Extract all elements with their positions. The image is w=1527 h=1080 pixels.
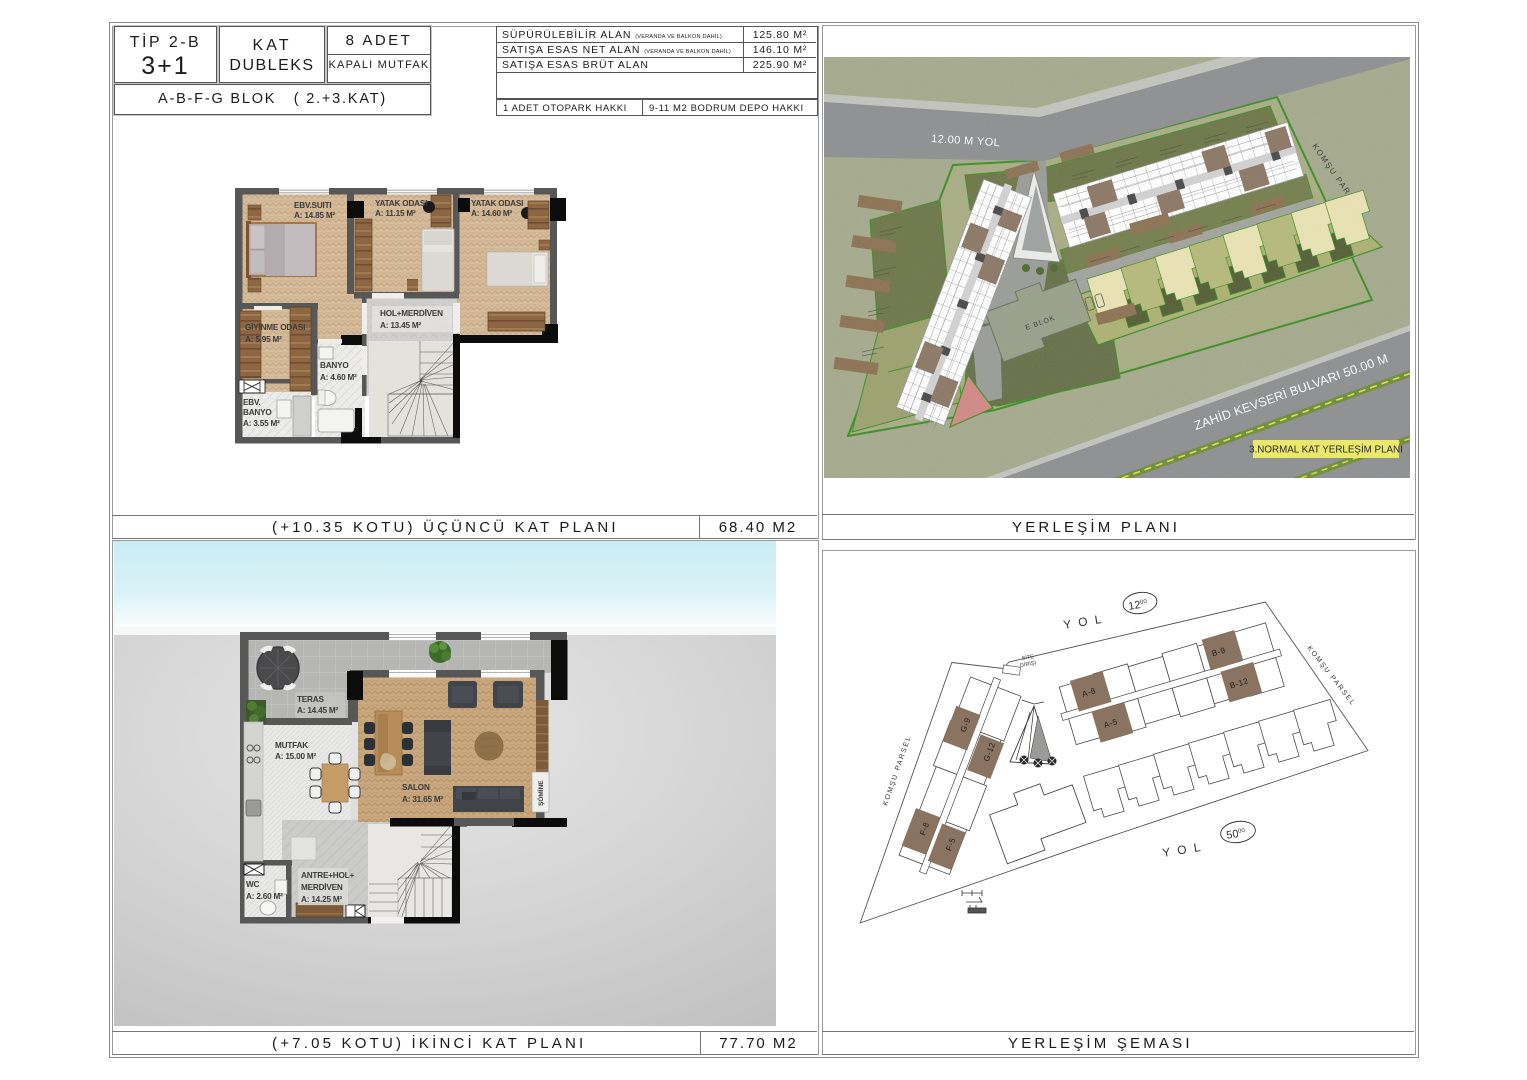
svg-text:ANTRE+HOL+: ANTRE+HOL+ [301,871,354,880]
svg-text:A: 2.60 M²: A: 2.60 M² [246,892,283,901]
svg-text:A: 15.00 M²: A: 15.00 M² [275,752,316,761]
svg-text:MERDİVEN: MERDİVEN [301,882,343,892]
svg-text:A: 11.15 M²: A: 11.15 M² [375,209,416,218]
svg-text:EBV.: EBV. [243,398,261,407]
svg-text:A: 14.45 M²: A: 14.45 M² [297,706,338,715]
svg-text:BANYO: BANYO [320,361,349,370]
svg-text:BANYO: BANYO [243,408,272,417]
svg-text:HOL+MERDİVEN: HOL+MERDİVEN [380,308,443,318]
svg-text:A: 14.60 M²: A: 14.60 M² [471,209,512,218]
svg-text:Y O L: Y O L [1161,840,1203,860]
svg-text:A: 13.45 M²: A: 13.45 M² [380,321,421,330]
svg-text:GİYİNME ODASI: GİYİNME ODASI [245,322,305,332]
svg-text:A: 14.25 M²: A: 14.25 M² [301,895,342,904]
svg-text:1200: 1200 [1128,598,1149,613]
svg-text:5000: 5000 [1226,827,1247,842]
svg-text:A: 4.60 M²: A: 4.60 M² [320,373,357,382]
svg-text:A: 5.95 M²: A: 5.95 M² [245,335,282,344]
svg-text:TERAS: TERAS [297,695,324,704]
svg-text:WC: WC [246,880,260,889]
svg-text:A: 14.85 M²: A: 14.85 M² [294,211,335,220]
svg-text:YATAK ODASI: YATAK ODASI [471,199,523,208]
svg-text:MUTFAK: MUTFAK [275,741,308,750]
svg-text:A: 3.55 M²: A: 3.55 M² [243,419,280,428]
svg-text:Y O L: Y O L [1062,612,1104,632]
svg-text:YATAK ODASI: YATAK ODASI [375,199,427,208]
svg-text:A: 31.65 M²: A: 31.65 M² [402,795,443,804]
svg-text:EBV.SUITI: EBV.SUITI [294,201,331,210]
svg-text:ŞÖMİNE: ŞÖMİNE [536,780,545,806]
svg-text:SALON: SALON [402,783,430,792]
